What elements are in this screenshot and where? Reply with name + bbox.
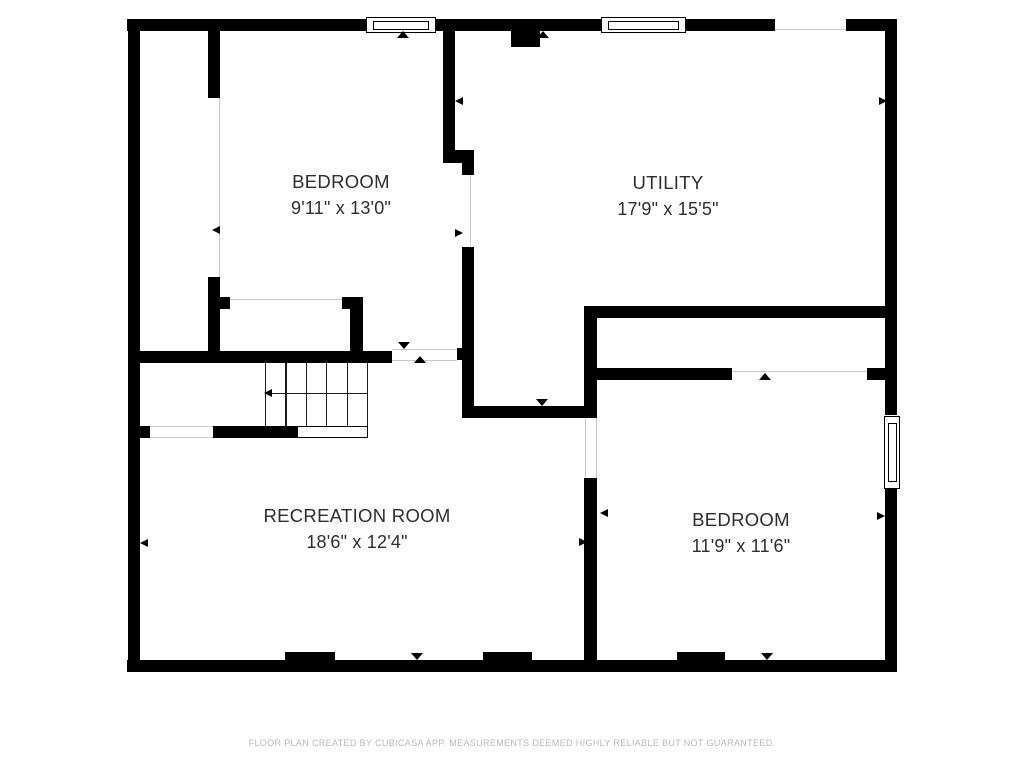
outer-wall-left	[128, 19, 140, 672]
divider-wall-mid	[462, 155, 474, 175]
door-marker-icon	[536, 399, 548, 406]
stair-tread	[306, 363, 307, 426]
room-dimensions: 18'6" x 12'4"	[263, 531, 450, 553]
door-marker-icon	[877, 512, 885, 520]
room-name: RECREATION ROOM	[263, 505, 450, 527]
stair-doorway-line-top	[392, 349, 457, 350]
bedroom2-top-wall-right	[867, 368, 897, 380]
stair-side-line	[367, 363, 368, 427]
door-marker-icon	[397, 31, 409, 38]
stair-direction-line	[272, 393, 367, 394]
outer-wall-top-1	[127, 19, 366, 31]
bedroom2-top-wall-left	[594, 368, 732, 380]
stair-tread	[285, 363, 286, 426]
utility-southwest-wall	[462, 406, 596, 418]
stair-direction-arrow-icon	[264, 389, 272, 397]
recroom-door-line-bottom	[150, 437, 213, 438]
door-marker-icon	[455, 229, 463, 237]
utility-south-vertical-wall	[584, 306, 597, 418]
window-pane	[373, 21, 429, 30]
top-wall-opening-line	[775, 29, 846, 30]
room-dimensions: 17'9" x 15'5"	[617, 198, 718, 220]
room-label-recreation-room: RECREATION ROOM 18'6" x 12'4"	[263, 505, 450, 553]
closet-stub-left	[220, 297, 230, 309]
bottom-wall-stub-2	[483, 652, 532, 660]
window-top-right	[601, 17, 686, 33]
outer-wall-bottom	[127, 660, 897, 672]
room-label-bedroom-1: BEDROOM 9'11" x 13'0"	[291, 171, 391, 219]
door-marker-icon	[212, 226, 220, 234]
bedroom2-door-line-right	[596, 418, 597, 478]
room-dimensions: 9'11" x 13'0"	[291, 197, 391, 219]
window-pane	[888, 423, 897, 482]
stair-base-wall	[213, 426, 297, 438]
room-label-utility: UTILITY 17'9" x 15'5"	[617, 172, 718, 220]
divider-wall-lower	[462, 247, 474, 418]
door-marker-icon	[879, 97, 887, 105]
floorplan-disclaimer: FLOOR PLAN CREATED BY CUBICASA APP. MEAS…	[0, 738, 1024, 748]
hall-wall	[140, 351, 392, 363]
door-marker-icon	[600, 509, 608, 517]
door-marker-icon	[455, 97, 463, 105]
room-name: UTILITY	[617, 172, 718, 194]
room-name: BEDROOM	[291, 171, 391, 193]
bedroom2-top-opening-line	[732, 371, 867, 372]
stair-tread	[326, 363, 327, 426]
door-marker-icon	[537, 31, 549, 38]
floor-plan: BEDROOM 9'11" x 13'0" UTILITY 17'9" x 15…	[0, 0, 1024, 768]
door-marker-icon	[140, 539, 148, 547]
window-right-wall	[884, 416, 900, 489]
room-label-bedroom-2: BEDROOM 11'9" x 11'6"	[692, 509, 791, 557]
divider-wall-upper	[443, 31, 455, 155]
stair-tread	[347, 363, 348, 426]
stair-landing	[297, 426, 368, 438]
recroom-door-stub	[140, 426, 150, 438]
room-name: BEDROOM	[692, 509, 791, 531]
door-marker-icon	[759, 373, 771, 380]
bedroom1-opening-line	[219, 98, 220, 277]
bedroom2-door-line-left	[585, 418, 586, 478]
door-marker-icon	[398, 342, 410, 349]
divider-opening-line	[470, 175, 471, 247]
outer-wall-right-upper	[885, 19, 897, 415]
outer-wall-right-lower	[885, 489, 897, 672]
window-pane	[608, 21, 679, 30]
utility-south-wall	[584, 306, 897, 318]
door-marker-icon	[414, 356, 426, 363]
bedroom1-left-wall-upper	[208, 31, 220, 98]
recroom-door-line-top	[150, 426, 213, 427]
room-dimensions: 11'9" x 11'6"	[692, 535, 791, 557]
bedroom2-left-wall-lower	[584, 478, 597, 672]
door-marker-icon	[761, 653, 773, 660]
top-wall-stub	[511, 31, 540, 47]
outer-wall-top-2	[436, 19, 601, 31]
door-marker-icon	[579, 538, 587, 546]
outer-wall-top-3	[686, 19, 775, 31]
door-marker-icon	[411, 653, 423, 660]
bottom-wall-stub-1	[285, 652, 335, 660]
closet-opening-line	[230, 299, 342, 300]
bottom-wall-stub-3	[677, 652, 725, 660]
